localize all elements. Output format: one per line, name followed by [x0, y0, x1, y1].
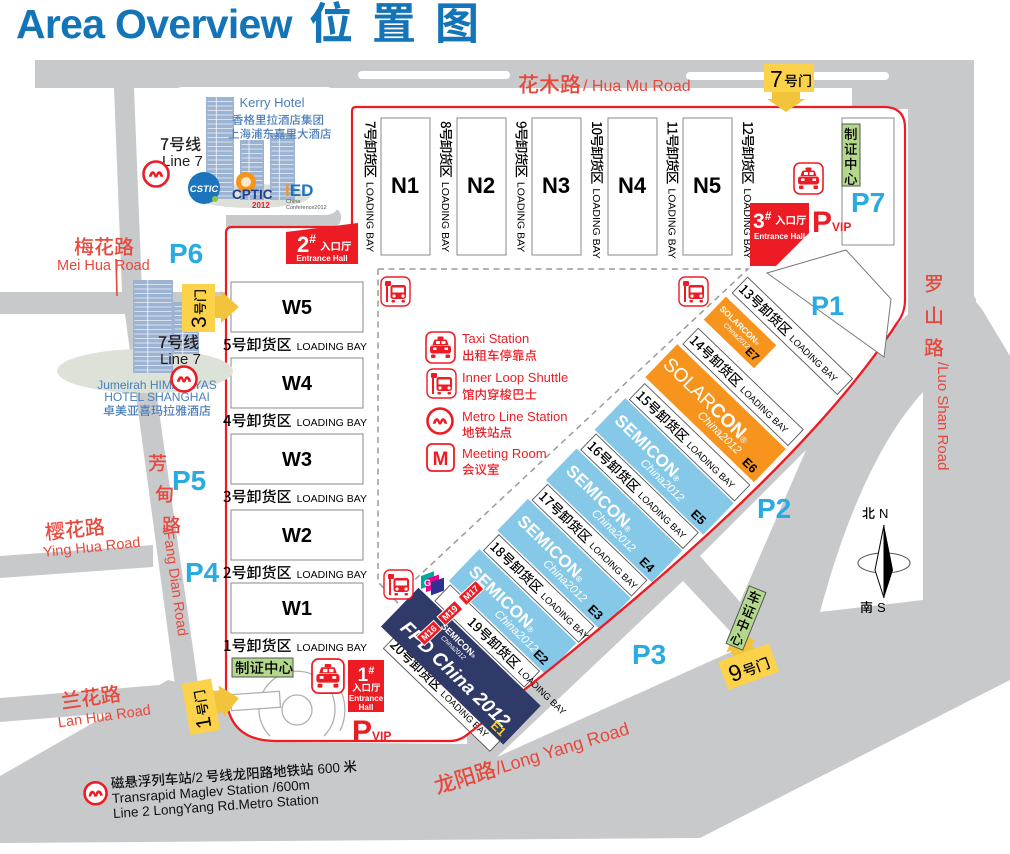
svg-text:Line 7: Line 7 — [160, 351, 201, 368]
svg-text:600: 600 — [317, 760, 341, 777]
svg-text:N3: N3 — [542, 173, 570, 198]
svg-text:N5: N5 — [693, 173, 721, 198]
svg-text:/2: /2 — [191, 770, 203, 786]
svg-text:N2: N2 — [467, 173, 495, 198]
svg-text:P3: P3 — [632, 639, 666, 670]
svg-text:LOADING BAY: LOADING BAY — [439, 182, 451, 252]
svg-text:Entrance Hall: Entrance Hall — [296, 254, 347, 263]
svg-text:3: 3 — [188, 316, 211, 328]
svg-text:G: G — [424, 578, 431, 588]
svg-text:Taxi Station: Taxi Station — [462, 331, 529, 346]
svg-text:LOADING BAY: LOADING BAY — [515, 182, 527, 252]
svg-text:Meeting Room: Meeting Room — [462, 446, 547, 461]
svg-text:/Luo Shan Road: /Luo Shan Road — [934, 362, 951, 470]
svg-text:W5: W5 — [282, 297, 312, 319]
svg-text:P1: P1 — [811, 291, 844, 321]
svg-text:CPTIC: CPTIC — [232, 187, 273, 202]
svg-text:LOADING BAY: LOADING BAY — [364, 182, 376, 252]
svg-text:LOADING BAY: LOADING BAY — [666, 188, 678, 258]
svg-text:S: S — [877, 600, 886, 615]
svg-text:N: N — [879, 506, 888, 521]
svg-text:P6: P6 — [169, 238, 203, 269]
svg-text:N4: N4 — [618, 173, 647, 198]
svg-text:Entrance Hall: Entrance Hall — [754, 232, 805, 241]
svg-text:Kerry Hotel: Kerry Hotel — [239, 95, 304, 110]
svg-text:P5: P5 — [172, 465, 206, 496]
svg-text:LOADING BAY: LOADING BAY — [297, 341, 367, 353]
svg-text:7: 7 — [770, 66, 783, 92]
svg-text:LOADING BAY: LOADING BAY — [297, 569, 367, 581]
svg-text:Inner Loop Shuttle: Inner Loop Shuttle — [462, 370, 568, 385]
svg-text:P2: P2 — [757, 493, 791, 524]
svg-text:LOADING BAY: LOADING BAY — [297, 493, 367, 505]
svg-text:M: M — [433, 449, 449, 470]
svg-text:W3: W3 — [282, 449, 312, 471]
svg-text:Conference2012: Conference2012 — [286, 205, 327, 211]
svg-text:P7: P7 — [851, 187, 885, 218]
svg-text:Mei Hua Road: Mei Hua Road — [57, 258, 150, 274]
svg-text:Entrance: Entrance — [349, 694, 384, 703]
svg-text:HOTEL SHANGHAI: HOTEL SHANGHAI — [104, 390, 210, 404]
svg-text:Area Overview: Area Overview — [16, 1, 293, 47]
svg-text:LOADING BAY: LOADING BAY — [590, 188, 602, 258]
svg-text:2012: 2012 — [252, 201, 270, 210]
svg-text:W2: W2 — [282, 525, 312, 547]
svg-text:CSTIC: CSTIC — [190, 184, 219, 195]
svg-text:N1: N1 — [391, 173, 419, 198]
svg-text:W4: W4 — [282, 373, 313, 395]
svg-text:LOADING BAY: LOADING BAY — [297, 417, 367, 429]
svg-text:Hall: Hall — [359, 703, 374, 712]
svg-text:P4: P4 — [185, 557, 220, 588]
svg-text:W1: W1 — [282, 598, 312, 620]
svg-text:/ Hua Mu Road: / Hua Mu Road — [583, 78, 691, 95]
svg-text:LOADING BAY: LOADING BAY — [297, 642, 367, 654]
svg-text:IED: IED — [285, 181, 313, 200]
svg-text:Metro Line Station: Metro Line Station — [462, 409, 568, 424]
